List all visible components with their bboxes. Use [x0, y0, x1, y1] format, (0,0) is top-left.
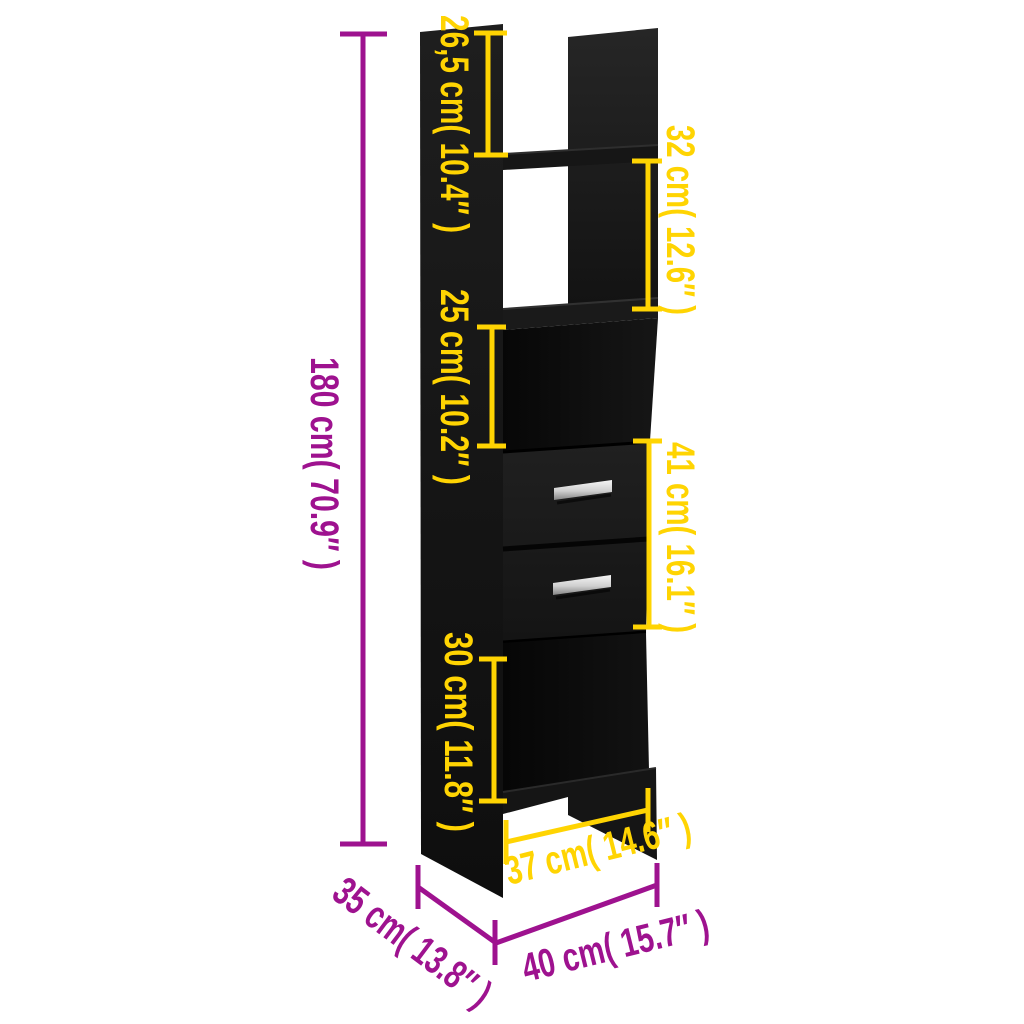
dim-label-overall-width: 40 cm( 15.7″ ): [518, 902, 714, 991]
dim-label-top-compartment: 26,5 cm( 10.4″ ): [432, 15, 476, 233]
dim-label-middle-compartment: 25 cm( 10.2″ ): [432, 289, 476, 485]
dim-label-overall-height: 180 cm( 70.9″ ): [302, 357, 346, 570]
cabinet-back-panel: [568, 28, 658, 318]
dim-label-drawer-section: 41 cm( 16.1″ ): [658, 442, 702, 633]
cabinet-open-compartment-lower: [503, 633, 649, 792]
product-dimension-diagram: 26,5 cm( 10.4″ ) 32 cm( 12.6″ ) 25 cm( 1…: [0, 0, 1024, 1024]
dim-label-depth: 35 cm( 13.8″ ): [325, 869, 500, 1016]
dim-line-overall-height: [340, 34, 387, 844]
dim-label-upper-compartment: 32 cm( 12.6″ ): [658, 125, 702, 315]
dim-label-lower-compartment: 30 cm( 11.8″ ): [436, 632, 480, 832]
diagram-canvas: 26,5 cm( 10.4″ ) 32 cm( 12.6″ ) 25 cm( 1…: [0, 0, 1024, 1024]
cabinet-open-compartment-upper: [503, 318, 658, 451]
